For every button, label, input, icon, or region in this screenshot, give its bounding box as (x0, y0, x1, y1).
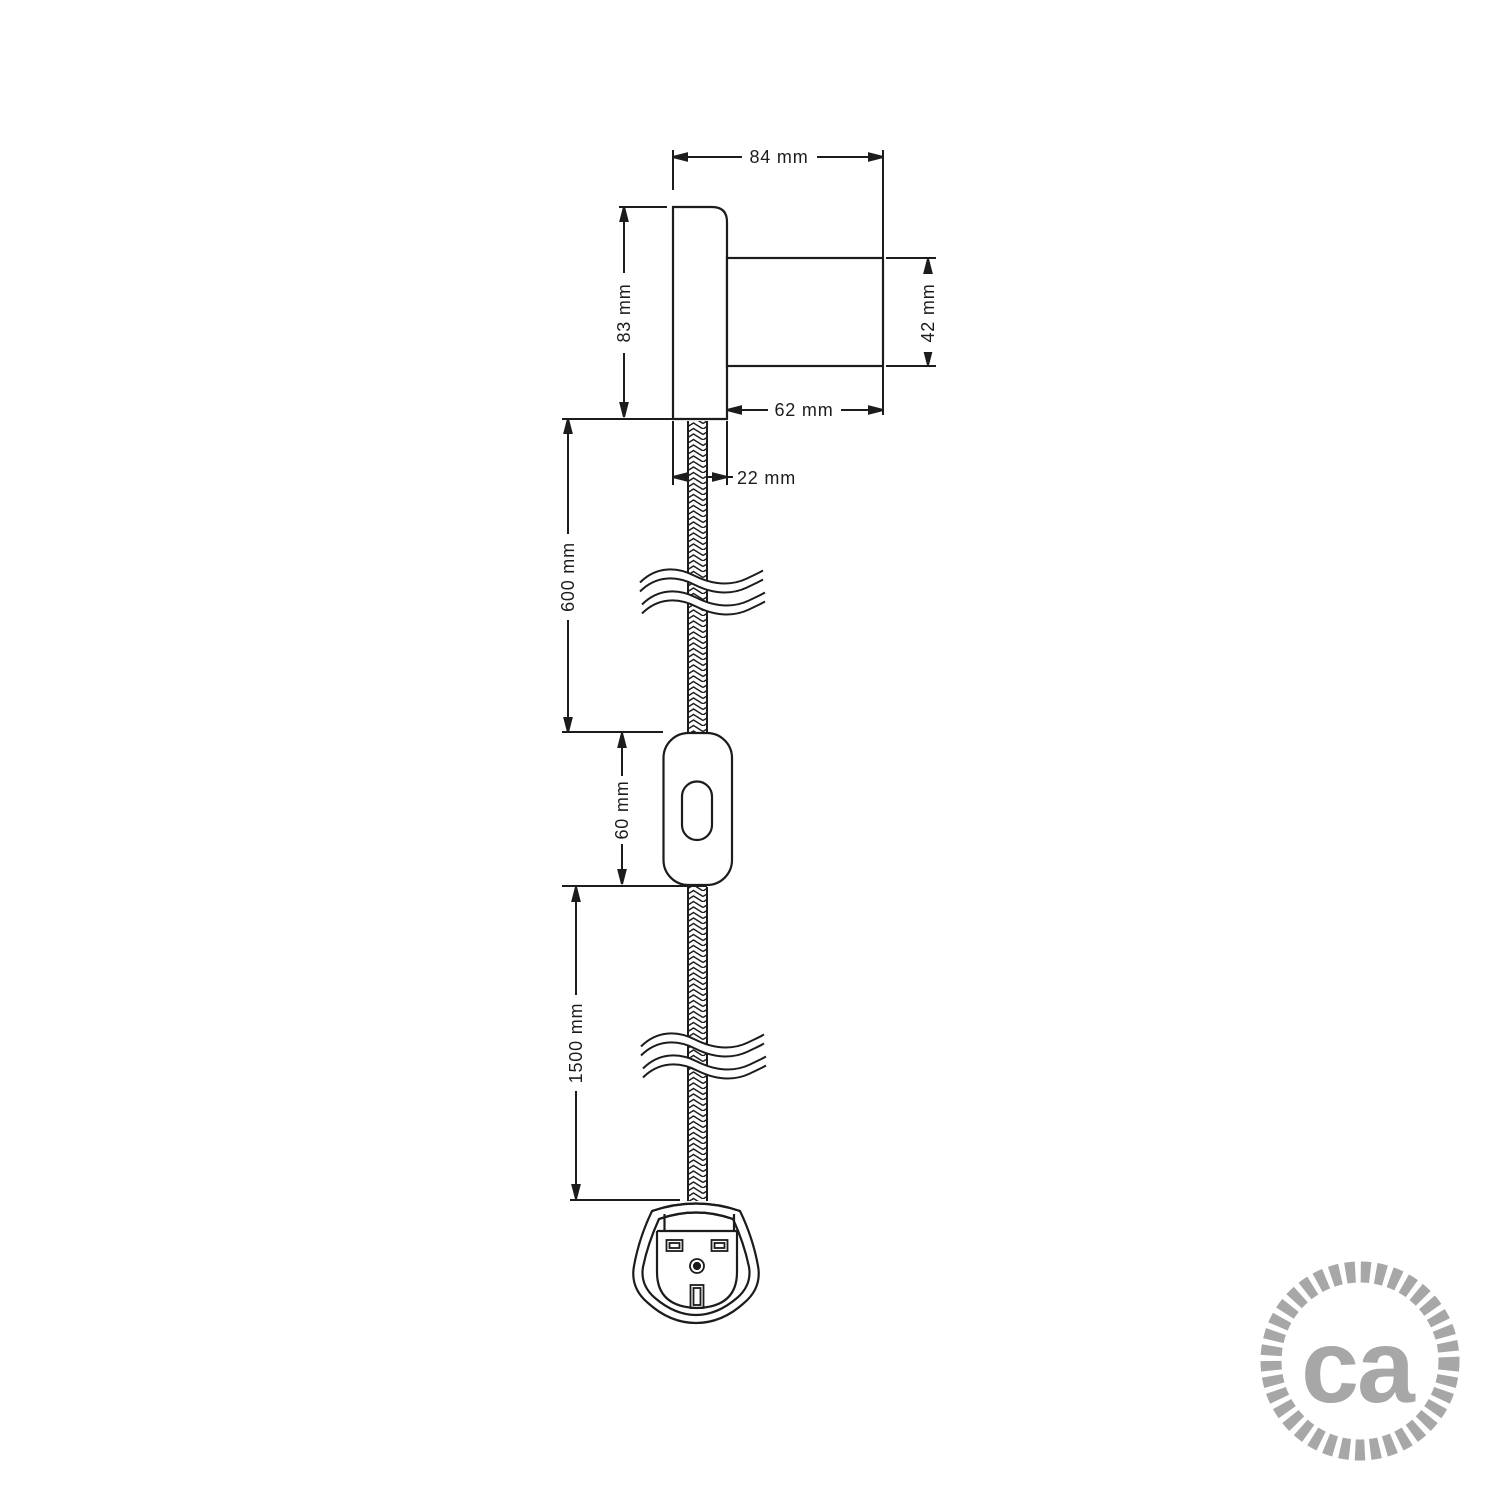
arrowhead (618, 733, 625, 747)
inline-switch (664, 733, 733, 885)
technical-drawing-svg: 84 mm 83 mm 42 mm 62 mm 22 mm 600 mm 60 … (0, 0, 1500, 1500)
arrowhead (572, 887, 579, 901)
uk-plug (633, 1204, 758, 1324)
arrowhead (924, 351, 931, 365)
label-plate-height: 83 mm (614, 283, 634, 342)
arrowhead (713, 473, 727, 480)
wall-fixture (673, 207, 883, 419)
dimension-diagram: 84 mm 83 mm 42 mm 62 mm 22 mm 600 mm 60 … (0, 0, 1500, 1500)
label-body-length: 62 mm (774, 400, 833, 420)
label-body-diameter: 42 mm (918, 283, 938, 342)
label-lower-cable-length: 1500 mm (566, 1003, 586, 1084)
brand-logo-text: ca (1301, 1309, 1416, 1425)
arrowhead (869, 406, 883, 413)
socket-body (727, 258, 883, 366)
label-upper-cable-length: 600 mm (558, 542, 578, 612)
wall-plate (673, 207, 727, 419)
arrowhead (673, 473, 687, 480)
arrowhead (673, 153, 687, 160)
arrowhead (564, 718, 571, 732)
plug-screw-center (694, 1263, 700, 1269)
arrowhead (620, 403, 627, 417)
arrowhead (620, 207, 627, 221)
arrowhead (869, 153, 883, 160)
arrowhead (727, 406, 741, 413)
switch-rocker (682, 782, 712, 841)
brand-logo: ca (1271, 1272, 1449, 1450)
arrowhead (564, 419, 571, 433)
label-plate-thickness: 22 mm (737, 468, 796, 488)
arrowhead (572, 1185, 579, 1199)
label-total-depth: 84 mm (749, 147, 808, 167)
arrowhead (924, 259, 931, 273)
label-switch-length: 60 mm (612, 780, 632, 839)
arrowhead (618, 870, 625, 884)
